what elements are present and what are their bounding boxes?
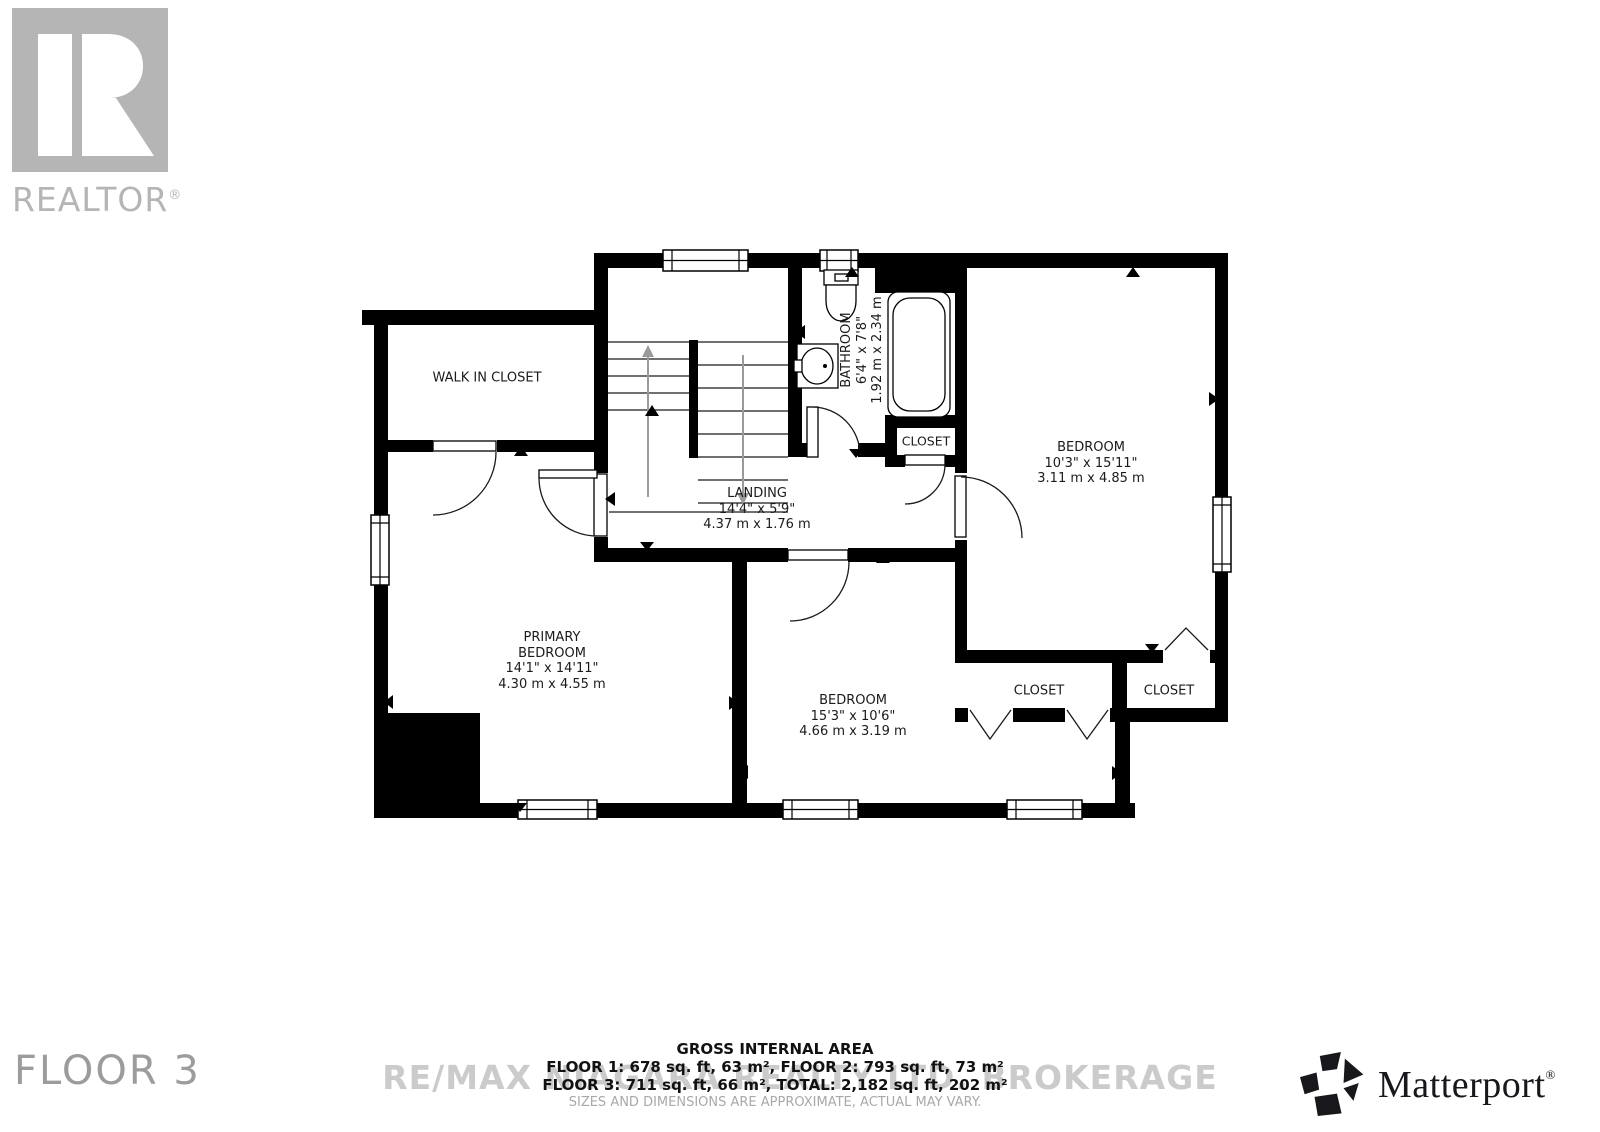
- area-summary-disclaimer: SIZES AND DIMENSIONS ARE APPROXIMATE, AC…: [542, 1094, 1007, 1111]
- window-right-bedroom: [1213, 497, 1231, 572]
- room-dims-metric: 4.66 m x 3.19 m: [799, 724, 906, 740]
- area-summary-line-1: FLOOR 1: 678 sq. ft, 63 m², FLOOR 2: 793…: [542, 1058, 1007, 1076]
- room-dims-metric: 4.30 m x 4.55 m: [498, 677, 605, 693]
- room-dims-metric: 1.92 m x 2.34 m: [870, 296, 886, 403]
- bifold-door-left-closet-2: [1065, 706, 1110, 739]
- room-name: WALK IN CLOSET: [432, 370, 541, 386]
- room-label-closet-left: CLOSET: [1014, 683, 1065, 699]
- door-right-bedroom: [953, 473, 1022, 540]
- room-dims-imperial: 14'1" x 14'11": [498, 661, 605, 677]
- matterport-wordmark: Matterport®: [1378, 1063, 1556, 1107]
- matterport-reg-icon: ®: [1546, 1067, 1556, 1082]
- window-bottom-bedroom-1: [783, 800, 858, 819]
- matterport-logo-icon: [1300, 1052, 1366, 1118]
- room-dims-imperial: 6'4" x 7'8": [854, 296, 870, 403]
- stair-divider: [689, 340, 698, 458]
- window-bottom-bedroom-2: [1007, 800, 1082, 819]
- room-name: BEDROOM: [1037, 440, 1144, 456]
- door-primary-bedroom: [539, 470, 609, 537]
- room-name: CLOSET: [902, 433, 951, 449]
- window-bottom-primary: [518, 800, 597, 819]
- area-summary-title: GROSS INTERNAL AREA: [542, 1040, 1007, 1058]
- area-summary-line-2: FLOOR 3: 711 sq. ft, 66 m², TOTAL: 2,182…: [542, 1076, 1007, 1094]
- floor-plan-drawing: [0, 0, 1600, 1132]
- room-name: LANDING: [703, 486, 810, 502]
- room-dims-imperial: 10'3" x 15'11": [1037, 455, 1144, 471]
- bifold-door-left-closet-1: [968, 706, 1013, 739]
- room-name-line-2: BEDROOM: [498, 646, 605, 662]
- room-name: BATHROOM: [839, 296, 855, 403]
- room-label-closet-right: CLOSET: [1144, 683, 1195, 699]
- room-label-landing: LANDING 14'4" x 5'9" 4.37 m x 1.76 m: [703, 486, 810, 533]
- room-label-primary-bedroom: PRIMARY BEDROOM 14'1" x 14'11" 4.30 m x …: [498, 630, 605, 692]
- room-dims-metric: 4.37 m x 1.76 m: [703, 517, 810, 533]
- bathtub-fixture: [888, 292, 950, 417]
- floor-label: FLOOR 3: [14, 1048, 201, 1094]
- room-name: CLOSET: [1144, 683, 1195, 699]
- matterport-wordmark-text: Matterport: [1378, 1064, 1546, 1106]
- floorplan-page: REALTOR®: [0, 0, 1600, 1132]
- stairs-down-arrow: [737, 355, 749, 505]
- window-top-stairs: [663, 250, 748, 271]
- room-label-walk-in-closet: WALK IN CLOSET: [432, 370, 541, 386]
- stairs-up-arrow: [642, 345, 654, 497]
- room-label-bedroom-right: BEDROOM 10'3" x 15'11" 3.11 m x 4.85 m: [1037, 440, 1144, 487]
- room-dims-imperial: 14'4" x 5'9": [703, 501, 810, 517]
- bifold-door-right-closet: [1163, 628, 1210, 665]
- room-label-bedroom-bottom: BEDROOM 15'3" x 10'6" 4.66 m x 3.19 m: [799, 693, 906, 740]
- room-dims-imperial: 15'3" x 10'6": [799, 708, 906, 724]
- gross-internal-area-summary: GROSS INTERNAL AREA FLOOR 1: 678 sq. ft,…: [542, 1040, 1007, 1111]
- room-name: BEDROOM: [799, 693, 906, 709]
- walls: [362, 253, 1228, 818]
- room-label-bathroom: BATHROOM 6'4" x 7'8" 1.92 m x 2.34 m: [839, 296, 886, 403]
- room-name-line-1: PRIMARY: [498, 630, 605, 646]
- room-name: CLOSET: [1014, 683, 1065, 699]
- room-label-closet-bathroom: CLOSET: [902, 433, 951, 449]
- sink-fixture: [794, 344, 838, 388]
- door-bathroom-closet: [905, 453, 945, 504]
- door-bottom-bedroom: [788, 546, 849, 621]
- door-walk-in-closet: [433, 439, 497, 515]
- room-dims-metric: 3.11 m x 4.85 m: [1037, 471, 1144, 487]
- matterport-logo: Matterport®: [1300, 1052, 1556, 1118]
- window-left-primary: [371, 515, 389, 585]
